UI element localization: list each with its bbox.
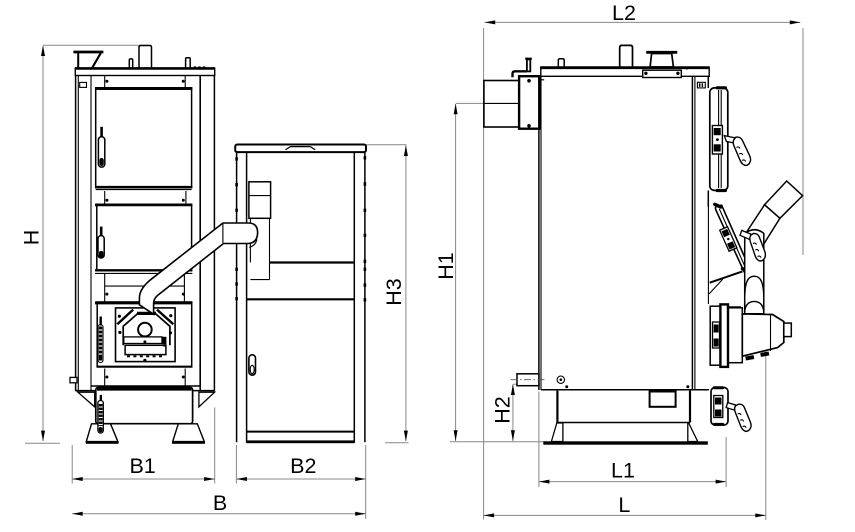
- svg-text:H: H: [20, 230, 44, 246]
- svg-text:L: L: [618, 493, 630, 517]
- svg-text:L2: L2: [612, 1, 636, 25]
- svg-text:H2: H2: [491, 396, 515, 423]
- svg-text:L1: L1: [611, 459, 635, 483]
- svg-text:H1: H1: [434, 252, 458, 279]
- svg-text:B2: B2: [290, 454, 316, 478]
- svg-text:B1: B1: [129, 454, 155, 478]
- svg-text:H3: H3: [382, 278, 406, 306]
- svg-text:B: B: [213, 491, 227, 515]
